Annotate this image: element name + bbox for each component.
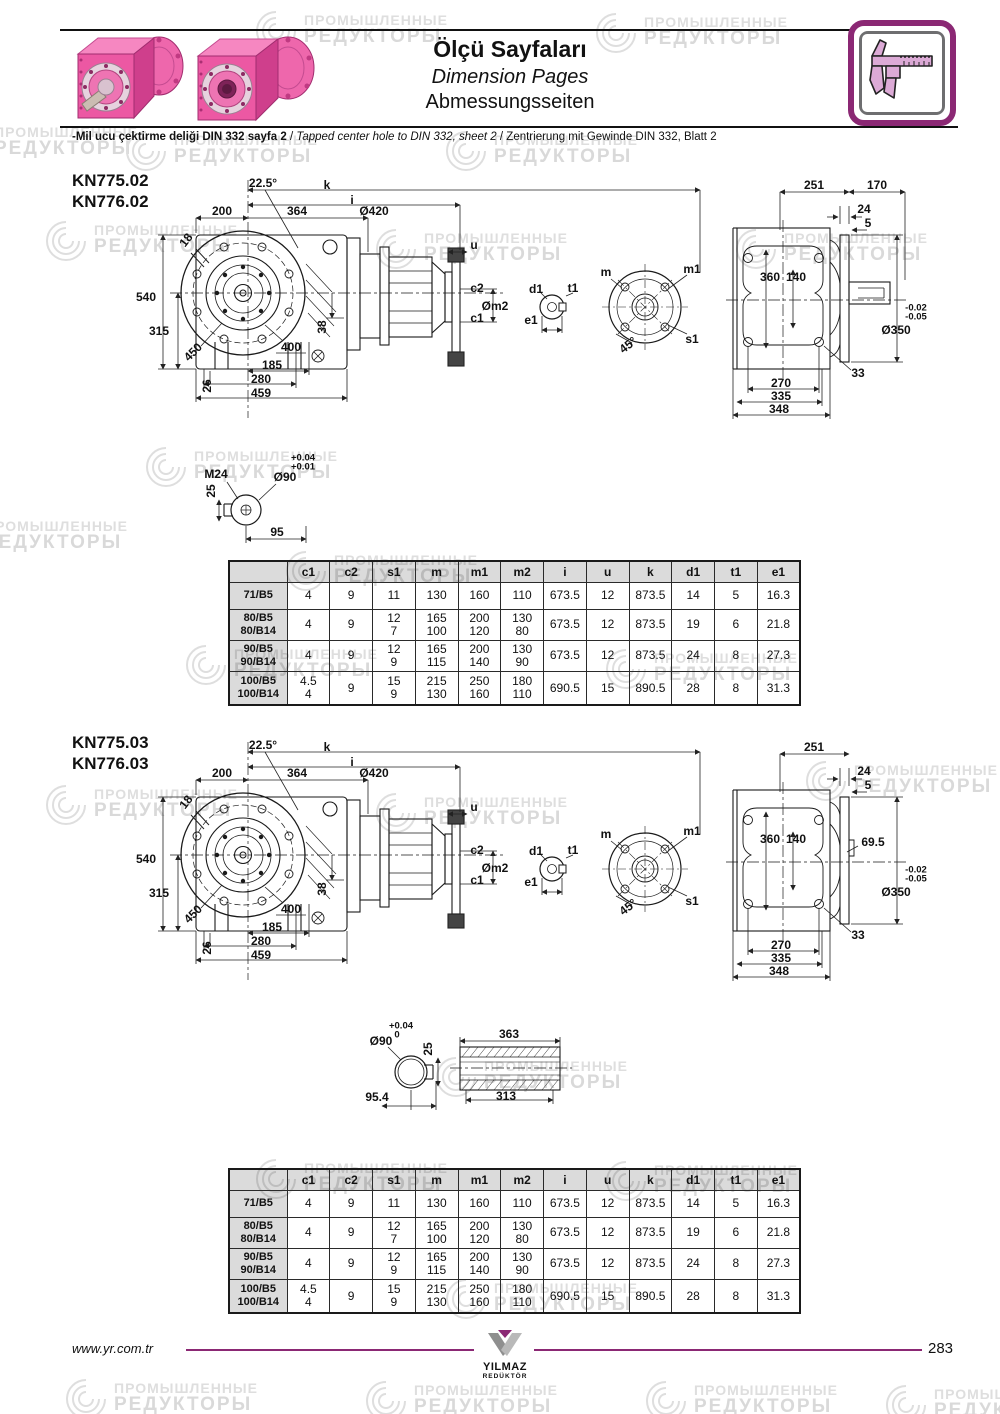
dim-label: 26 xyxy=(200,941,214,954)
dim-label: 459 xyxy=(251,386,271,400)
dimension-value: 9 xyxy=(330,1190,373,1217)
dimension-value: 673.5 xyxy=(544,582,587,609)
row-header: 80/B5 80/B14 xyxy=(229,1217,287,1248)
dim-label: 400 xyxy=(281,340,301,354)
dim-label: 251 xyxy=(804,740,824,754)
dim-label: 22.5° xyxy=(249,738,277,752)
dim-label: d1 xyxy=(529,282,543,296)
column-header: m1 xyxy=(458,1169,501,1190)
dimension-value: 6 xyxy=(715,1217,758,1248)
dimension-value: 4 xyxy=(287,582,330,609)
dim-label: 33 xyxy=(851,928,864,942)
column-header: i xyxy=(544,1169,587,1190)
column-header: u xyxy=(586,1169,629,1190)
dimension-value: 200 120 xyxy=(458,1217,501,1248)
table-row: 90/B5 90/B144912 9165 115200 140130 9067… xyxy=(229,640,800,671)
dimension-value: 16.3 xyxy=(757,1190,800,1217)
note-turkish: -Mil ucu çektirme deliği DIN 332 sayfa 2 xyxy=(72,131,287,143)
dimension-value: 200 120 xyxy=(458,609,501,640)
dimension-value: 5 xyxy=(715,1190,758,1217)
dim-label: 400 xyxy=(281,902,301,916)
row-header: 90/B5 90/B14 xyxy=(229,1248,287,1279)
column-header: u xyxy=(586,561,629,582)
table-corner-cell xyxy=(229,561,287,582)
table-row: 100/B5 100/B144.5 4915 9215 130250 16018… xyxy=(229,671,800,705)
dim-label: e1 xyxy=(524,313,537,327)
dimension-table-03: c1c2s1mm1m2iukd1t1e171/B5491113016011067… xyxy=(228,1168,801,1314)
dimension-value: 15 xyxy=(586,1279,629,1313)
dim-label: 5 xyxy=(865,216,872,230)
dimension-value: 9 xyxy=(330,582,373,609)
table-row: 71/B54911130160110673.512873.514516.3 xyxy=(229,582,800,609)
dimension-value: 165 100 xyxy=(415,609,458,640)
dim-label: 348 xyxy=(769,964,789,978)
dim-label: k xyxy=(324,740,331,754)
dimension-value: 165 115 xyxy=(415,1248,458,1279)
dim-label: 313 xyxy=(496,1089,516,1103)
dimension-value: 890.5 xyxy=(629,671,672,705)
note-german: Zentrierung mit Gewinde DIN 332, Blatt 2 xyxy=(506,131,716,143)
dim-label: i xyxy=(350,755,353,769)
dimension-value: 160 xyxy=(458,582,501,609)
dim-label: 22.5° xyxy=(249,176,277,190)
dim-label: 315 xyxy=(149,886,169,900)
dim-label: u xyxy=(470,800,477,814)
dimension-value: 4.5 4 xyxy=(287,1279,330,1313)
dim-label: s1 xyxy=(685,332,698,346)
dim-label: Ø350 xyxy=(881,323,910,337)
dimension-value: 15 xyxy=(586,671,629,705)
dimension-value: 4 xyxy=(287,1217,330,1248)
gearbox-photo-hollow-shaft xyxy=(186,26,316,130)
dim-label: 364 xyxy=(287,204,307,218)
dim-label: 315 xyxy=(149,324,169,338)
dimension-value: 130 90 xyxy=(501,640,544,671)
caliper-icon xyxy=(848,20,956,126)
dim-label: 25 xyxy=(421,1042,435,1055)
dimension-value: 9 xyxy=(330,671,373,705)
dimension-value: 28 xyxy=(672,671,715,705)
dim-label: c2 xyxy=(470,843,483,857)
din-note: -Mil ucu çektirme deliği DIN 332 sayfa 2… xyxy=(72,131,717,143)
dim-label: 200 xyxy=(212,204,232,218)
dimension-value: 130 80 xyxy=(501,1217,544,1248)
dim-tolerance: +0.01 xyxy=(291,462,315,473)
dimension-value: 873.5 xyxy=(629,640,672,671)
title-turkish: Ölçü Sayfaları xyxy=(310,36,710,63)
footer-rule-right xyxy=(534,1349,922,1351)
dim-label: u xyxy=(470,238,477,252)
dim-label: 69.5 xyxy=(861,835,884,849)
dimension-value: 250 160 xyxy=(458,1279,501,1313)
dimension-value: 6 xyxy=(715,609,758,640)
dimension-value: 873.5 xyxy=(629,1190,672,1217)
dim-label: k xyxy=(324,178,331,192)
column-header: t1 xyxy=(715,1169,758,1190)
dimension-value: 4 xyxy=(287,640,330,671)
dimension-value: 200 140 xyxy=(458,1248,501,1279)
dim-label: 363 xyxy=(499,1027,519,1041)
dim-tolerance: +0.04 xyxy=(389,1021,413,1032)
dimension-value: 130 xyxy=(415,582,458,609)
column-header: t1 xyxy=(715,561,758,582)
footer-rule-left xyxy=(186,1349,474,1351)
dimension-value: 8 xyxy=(715,671,758,705)
column-header: m2 xyxy=(501,1169,544,1190)
dimension-value: 673.5 xyxy=(544,1217,587,1248)
dimension-value: 19 xyxy=(672,609,715,640)
dimension-value: 16.3 xyxy=(757,582,800,609)
dim-label: 38 xyxy=(315,320,329,333)
dimension-value: 690.5 xyxy=(544,1279,587,1313)
dim-label: 200 xyxy=(212,766,232,780)
dim-label: m1 xyxy=(683,262,700,276)
dim-label: s1 xyxy=(685,894,698,908)
dimension-value: 12 7 xyxy=(373,1217,416,1248)
dim-tolerance: -0.05 xyxy=(905,312,927,323)
dim-label: 280 xyxy=(251,934,271,948)
dim-label: 24 xyxy=(857,202,870,216)
column-header: m xyxy=(415,561,458,582)
dim-label: 364 xyxy=(287,766,307,780)
dimension-value: 4 xyxy=(287,609,330,640)
page-title: Ölçü Sayfaları Dimension Pages Abmessung… xyxy=(310,36,710,114)
yilmaz-logo-icon xyxy=(482,1330,528,1357)
dim-label: 25 xyxy=(204,484,218,497)
dimension-value: 8 xyxy=(715,640,758,671)
dimension-value: 8 xyxy=(715,1279,758,1313)
dimension-value: 873.5 xyxy=(629,582,672,609)
dimension-value: 19 xyxy=(672,1217,715,1248)
dimension-value: 24 xyxy=(672,1248,715,1279)
dim-label: 95.4 xyxy=(365,1090,388,1104)
dimension-value: 873.5 xyxy=(629,1248,672,1279)
column-header: c1 xyxy=(287,561,330,582)
column-header: k xyxy=(629,1169,672,1190)
hollow-shaft-detail-03 xyxy=(382,1037,572,1110)
model-name: KN775.02 xyxy=(72,170,149,191)
dimension-value: 4.5 4 xyxy=(287,671,330,705)
table-corner-cell xyxy=(229,1169,287,1190)
dimension-value: 12 xyxy=(586,609,629,640)
note-english: Tapped center hole to DIN 332, sheet 2 xyxy=(296,131,496,143)
dimension-value: 12 9 xyxy=(373,640,416,671)
dimension-value: 21.8 xyxy=(757,609,800,640)
dim-label: 540 xyxy=(136,290,156,304)
table-row: 90/B5 90/B144912 9165 115200 140130 9067… xyxy=(229,1248,800,1279)
gearbox-photo-solid-shaft xyxy=(68,26,184,130)
column-header: c2 xyxy=(330,561,373,582)
column-header: m2 xyxy=(501,561,544,582)
yilmaz-logo: YILMAZ REDÜKTÖR xyxy=(479,1330,531,1381)
table-row: 80/B5 80/B144912 7165 100200 120130 8067… xyxy=(229,1217,800,1248)
dim-label: 540 xyxy=(136,852,156,866)
dimension-value: 200 140 xyxy=(458,640,501,671)
dimension-value: 4 xyxy=(287,1248,330,1279)
dimension-value: 130 xyxy=(415,1190,458,1217)
dimension-value: 673.5 xyxy=(544,640,587,671)
dimension-value: 130 90 xyxy=(501,1248,544,1279)
row-header: 71/B5 xyxy=(229,1190,287,1217)
catalog-page: ПРОМЫШЛЕННЫЕРЕДУКТОРЫ ПРОМЫШЛЕННЫЕРЕДУКТ… xyxy=(0,0,1000,1414)
dim-label: c1 xyxy=(470,311,483,325)
dim-label: 335 xyxy=(771,389,791,403)
table-row: 71/B54911130160110673.512873.514516.3 xyxy=(229,1190,800,1217)
column-header: d1 xyxy=(672,1169,715,1190)
dimension-value: 15 9 xyxy=(373,671,416,705)
dimension-value: 673.5 xyxy=(544,1248,587,1279)
dim-label: M24 xyxy=(204,467,227,481)
column-header: i xyxy=(544,561,587,582)
dimension-value: 165 100 xyxy=(415,1217,458,1248)
dimension-value: 27.3 xyxy=(757,640,800,671)
dimension-value: 15 9 xyxy=(373,1279,416,1313)
dimension-value: 180 110 xyxy=(501,671,544,705)
model-heading-03: KN775.03 KN776.03 xyxy=(72,732,149,775)
dim-label: Ø420 xyxy=(359,766,388,780)
dimension-value: 9 xyxy=(330,1217,373,1248)
table-row: 100/B5 100/B144.5 4915 9215 130250 16018… xyxy=(229,1279,800,1313)
dimension-value: 215 130 xyxy=(415,671,458,705)
dim-label: 185 xyxy=(262,358,282,372)
dimension-value: 110 xyxy=(501,1190,544,1217)
dim-label: Ø90 xyxy=(370,1034,393,1048)
logo-subtext: REDÜKTÖR xyxy=(479,1373,531,1381)
dimension-value: 12 9 xyxy=(373,1248,416,1279)
website-url[interactable]: www.yr.com.tr xyxy=(72,1341,153,1356)
dim-label: c2 xyxy=(470,281,483,295)
dimension-value: 9 xyxy=(330,1248,373,1279)
dimension-value: 9 xyxy=(330,1279,373,1313)
dimension-value: 11 xyxy=(373,582,416,609)
dim-label: Øm2 xyxy=(482,299,509,313)
dimension-value: 12 xyxy=(586,640,629,671)
dimension-value: 873.5 xyxy=(629,1217,672,1248)
row-header: 80/B5 80/B14 xyxy=(229,609,287,640)
dimension-value: 12 xyxy=(586,1190,629,1217)
column-header: s1 xyxy=(373,561,416,582)
model-name: KN775.03 xyxy=(72,732,149,753)
dim-label: Ø420 xyxy=(359,204,388,218)
dim-tolerance: -0.05 xyxy=(905,874,927,885)
column-header: m xyxy=(415,1169,458,1190)
dim-label: 140 xyxy=(786,270,806,284)
dim-label: 348 xyxy=(769,402,789,416)
dim-label: m xyxy=(601,827,612,841)
dimension-value: 14 xyxy=(672,1190,715,1217)
dim-label: m xyxy=(601,265,612,279)
model-name: KN776.02 xyxy=(72,191,149,212)
dim-label: 335 xyxy=(771,951,791,965)
dimension-value: 27.3 xyxy=(757,1248,800,1279)
dim-label: 360 xyxy=(760,832,780,846)
dim-label: i xyxy=(350,193,353,207)
dimension-value: 8 xyxy=(715,1248,758,1279)
dim-label: 280 xyxy=(251,372,271,386)
title-english: Dimension Pages xyxy=(310,66,710,89)
table-row: 80/B5 80/B144912 7165 100200 120130 8067… xyxy=(229,609,800,640)
dim-label: 38 xyxy=(315,882,329,895)
dimension-value: 11 xyxy=(373,1190,416,1217)
dimension-table-02: c1c2s1mm1m2iukd1t1e171/B5491113016011067… xyxy=(228,560,801,706)
column-header: k xyxy=(629,561,672,582)
dimension-value: 21.8 xyxy=(757,1217,800,1248)
dim-label: 26 xyxy=(200,379,214,392)
dim-label: 459 xyxy=(251,948,271,962)
dim-label: t1 xyxy=(568,281,579,295)
dimension-value: 12 xyxy=(586,1217,629,1248)
dimension-value: 250 160 xyxy=(458,671,501,705)
dimension-value: 890.5 xyxy=(629,1279,672,1313)
dim-label: Øm2 xyxy=(482,861,509,875)
column-header: s1 xyxy=(373,1169,416,1190)
model-heading-02: KN775.02 KN776.02 xyxy=(72,170,149,213)
column-header: m1 xyxy=(458,561,501,582)
dimension-value: 215 130 xyxy=(415,1279,458,1313)
row-header: 100/B5 100/B14 xyxy=(229,671,287,705)
dimension-value: 160 xyxy=(458,1190,501,1217)
dim-label: m1 xyxy=(683,824,700,838)
dim-label: c1 xyxy=(470,873,483,887)
dimension-value: 14 xyxy=(672,582,715,609)
dim-label: 270 xyxy=(771,376,791,390)
dimension-value: 31.3 xyxy=(757,671,800,705)
dim-label: 5 xyxy=(865,778,872,792)
dim-label: 270 xyxy=(771,938,791,952)
dimension-value: 130 80 xyxy=(501,609,544,640)
dim-label: 95 xyxy=(270,525,283,539)
model-name: KN776.03 xyxy=(72,753,149,774)
dimension-value: 180 110 xyxy=(501,1279,544,1313)
dimension-value: 12 xyxy=(586,1248,629,1279)
dim-label: e1 xyxy=(524,875,537,889)
dim-label: 251 xyxy=(804,178,824,192)
column-header: e1 xyxy=(757,561,800,582)
dimension-value: 12 7 xyxy=(373,609,416,640)
shaft-end-detail-02 xyxy=(219,482,306,543)
dimension-value: 165 115 xyxy=(415,640,458,671)
dimension-value: 4 xyxy=(287,1190,330,1217)
dim-label: 33 xyxy=(851,366,864,380)
dim-label: Ø350 xyxy=(881,885,910,899)
dim-label: 185 xyxy=(262,920,282,934)
logo-text: YILMAZ xyxy=(479,1362,531,1373)
page-number: 283 xyxy=(928,1340,953,1357)
dim-label: 140 xyxy=(786,832,806,846)
column-header: c2 xyxy=(330,1169,373,1190)
dim-label: 360 xyxy=(760,270,780,284)
dim-tolerance: 0 xyxy=(394,1030,399,1041)
dimension-value: 9 xyxy=(330,640,373,671)
row-header: 71/B5 xyxy=(229,582,287,609)
dim-label: d1 xyxy=(529,844,543,858)
column-header: e1 xyxy=(757,1169,800,1190)
dimension-value: 28 xyxy=(672,1279,715,1313)
dim-label: 170 xyxy=(867,178,887,192)
dimension-value: 12 xyxy=(586,582,629,609)
dimension-value: 31.3 xyxy=(757,1279,800,1313)
dimension-value: 690.5 xyxy=(544,671,587,705)
column-header: c1 xyxy=(287,1169,330,1190)
column-header: d1 xyxy=(672,561,715,582)
dimension-value: 673.5 xyxy=(544,609,587,640)
dimension-value: 673.5 xyxy=(544,1190,587,1217)
dimension-value: 9 xyxy=(330,609,373,640)
title-german: Abmessungsseiten xyxy=(310,91,710,114)
dimension-value: 24 xyxy=(672,640,715,671)
dimension-value: 5 xyxy=(715,582,758,609)
row-header: 90/B5 90/B14 xyxy=(229,640,287,671)
row-header: 100/B5 100/B14 xyxy=(229,1279,287,1313)
dimension-value: 873.5 xyxy=(629,609,672,640)
dim-label: 24 xyxy=(857,764,870,778)
dim-label: t1 xyxy=(568,843,579,857)
dimension-value: 110 xyxy=(501,582,544,609)
